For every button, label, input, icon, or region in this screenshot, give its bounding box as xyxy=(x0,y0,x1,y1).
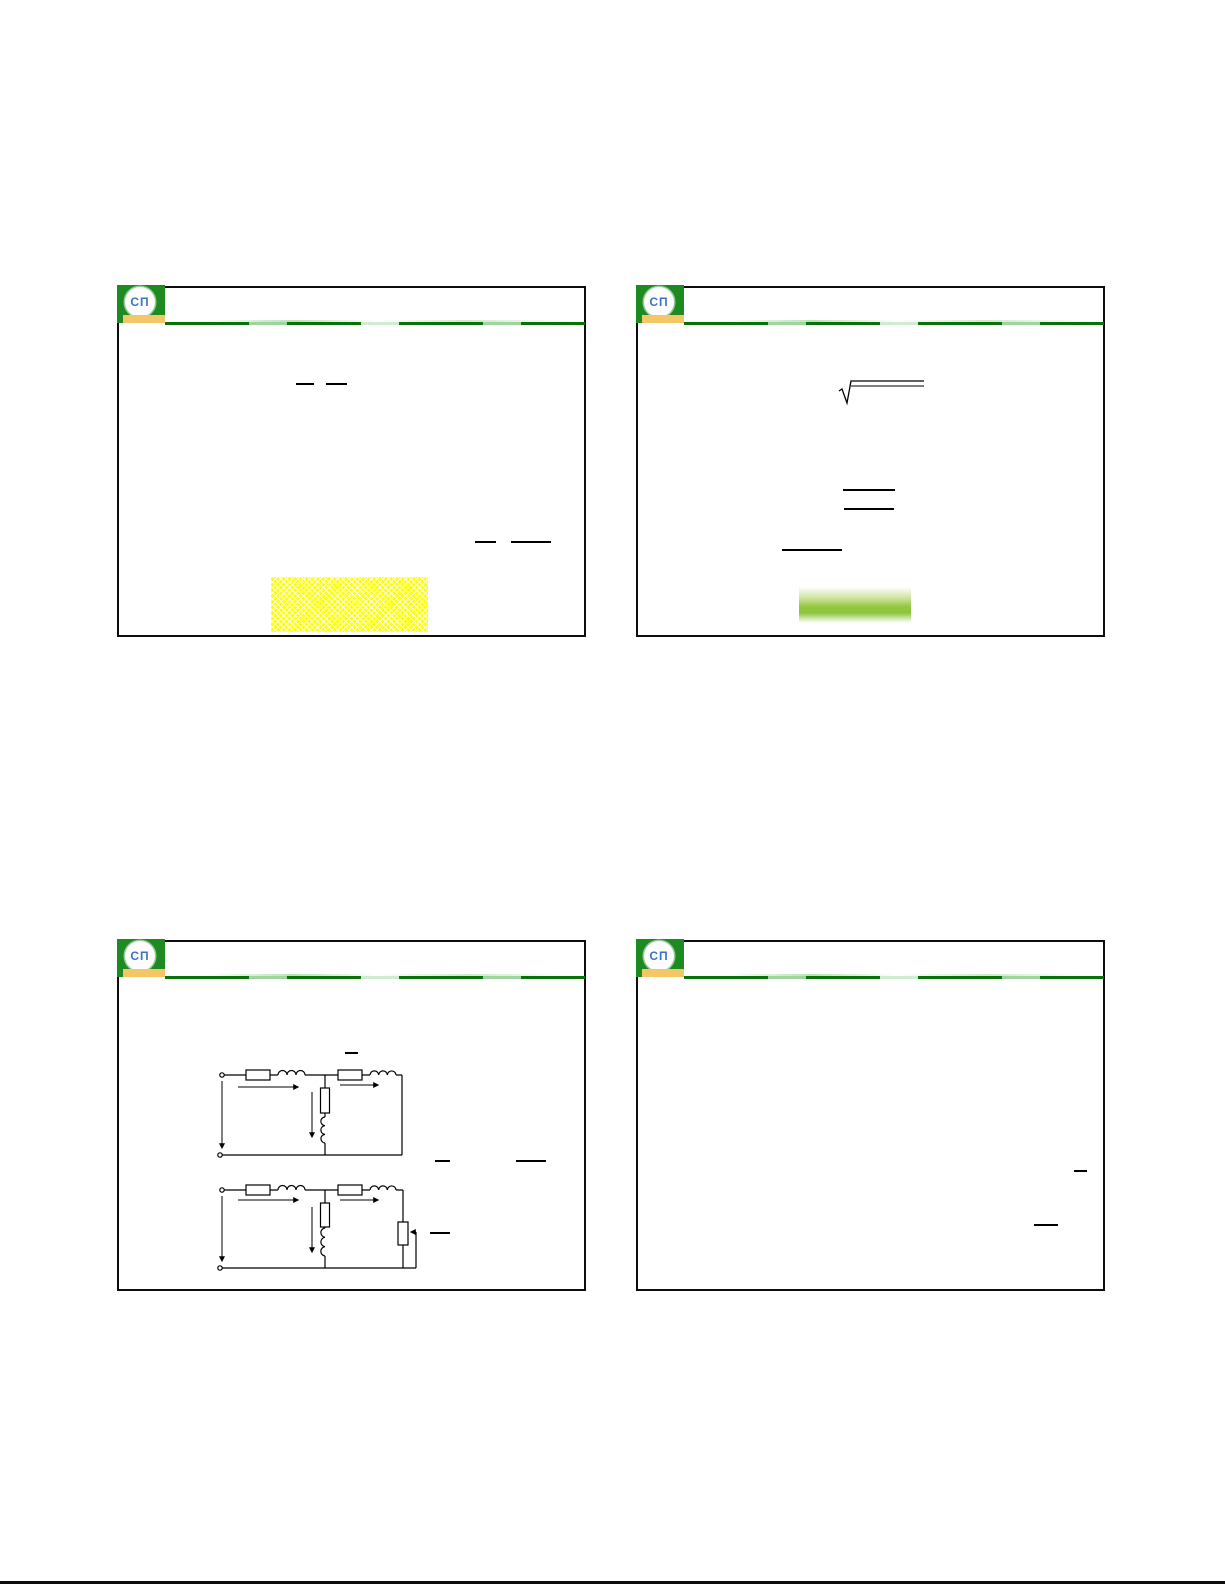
slide-bottom-right: СП xyxy=(636,940,1105,1291)
equation-fraction-bar xyxy=(782,549,842,551)
logo-letters: СП xyxy=(125,941,155,971)
equivalent-circuit-diagram-lower xyxy=(212,1180,424,1275)
equation-fraction-bar xyxy=(296,383,314,385)
equation-fraction-bar xyxy=(326,383,347,385)
slide-top-right: СП xyxy=(636,286,1105,637)
university-logo: СП xyxy=(636,285,684,323)
equation-fraction-bar xyxy=(1034,1224,1058,1226)
university-logo: СП xyxy=(117,285,165,323)
logo-letters: СП xyxy=(125,287,155,317)
slide-bottom-left: СП xyxy=(117,940,586,1291)
equation-fraction-bar xyxy=(430,1232,450,1234)
equation-fraction-bar xyxy=(516,1160,546,1162)
equation-fraction-bar xyxy=(844,508,894,510)
header-divider-line xyxy=(684,322,1104,325)
slide-top-left: СП xyxy=(117,286,586,637)
page-bottom-rule xyxy=(0,1581,1225,1584)
university-logo: СП xyxy=(117,939,165,977)
university-logo: СП xyxy=(636,939,684,977)
equation-fraction-bar xyxy=(435,1160,450,1162)
header-divider-line xyxy=(165,322,585,325)
header-divider-line xyxy=(165,976,585,979)
equation-fraction-bar xyxy=(511,541,551,543)
logo-letters: СП xyxy=(644,287,674,317)
equation-fraction-bar xyxy=(345,1052,358,1054)
green-highlight-bar xyxy=(799,587,911,623)
radical-sign xyxy=(838,379,926,406)
document-page: СП СП СП xyxy=(0,0,1225,1585)
logo-base-bar xyxy=(642,969,684,977)
logo-letters: СП xyxy=(644,941,674,971)
yellow-highlight-box xyxy=(271,577,428,632)
equation-fraction-bar xyxy=(843,489,895,491)
logo-base-bar xyxy=(123,315,165,323)
equation-fraction-bar xyxy=(475,541,496,543)
header-divider-line xyxy=(684,976,1104,979)
equation-fraction-bar xyxy=(1074,1170,1087,1172)
logo-base-bar xyxy=(123,969,165,977)
logo-base-bar xyxy=(642,315,684,323)
equivalent-circuit-diagram-upper xyxy=(212,1065,424,1160)
